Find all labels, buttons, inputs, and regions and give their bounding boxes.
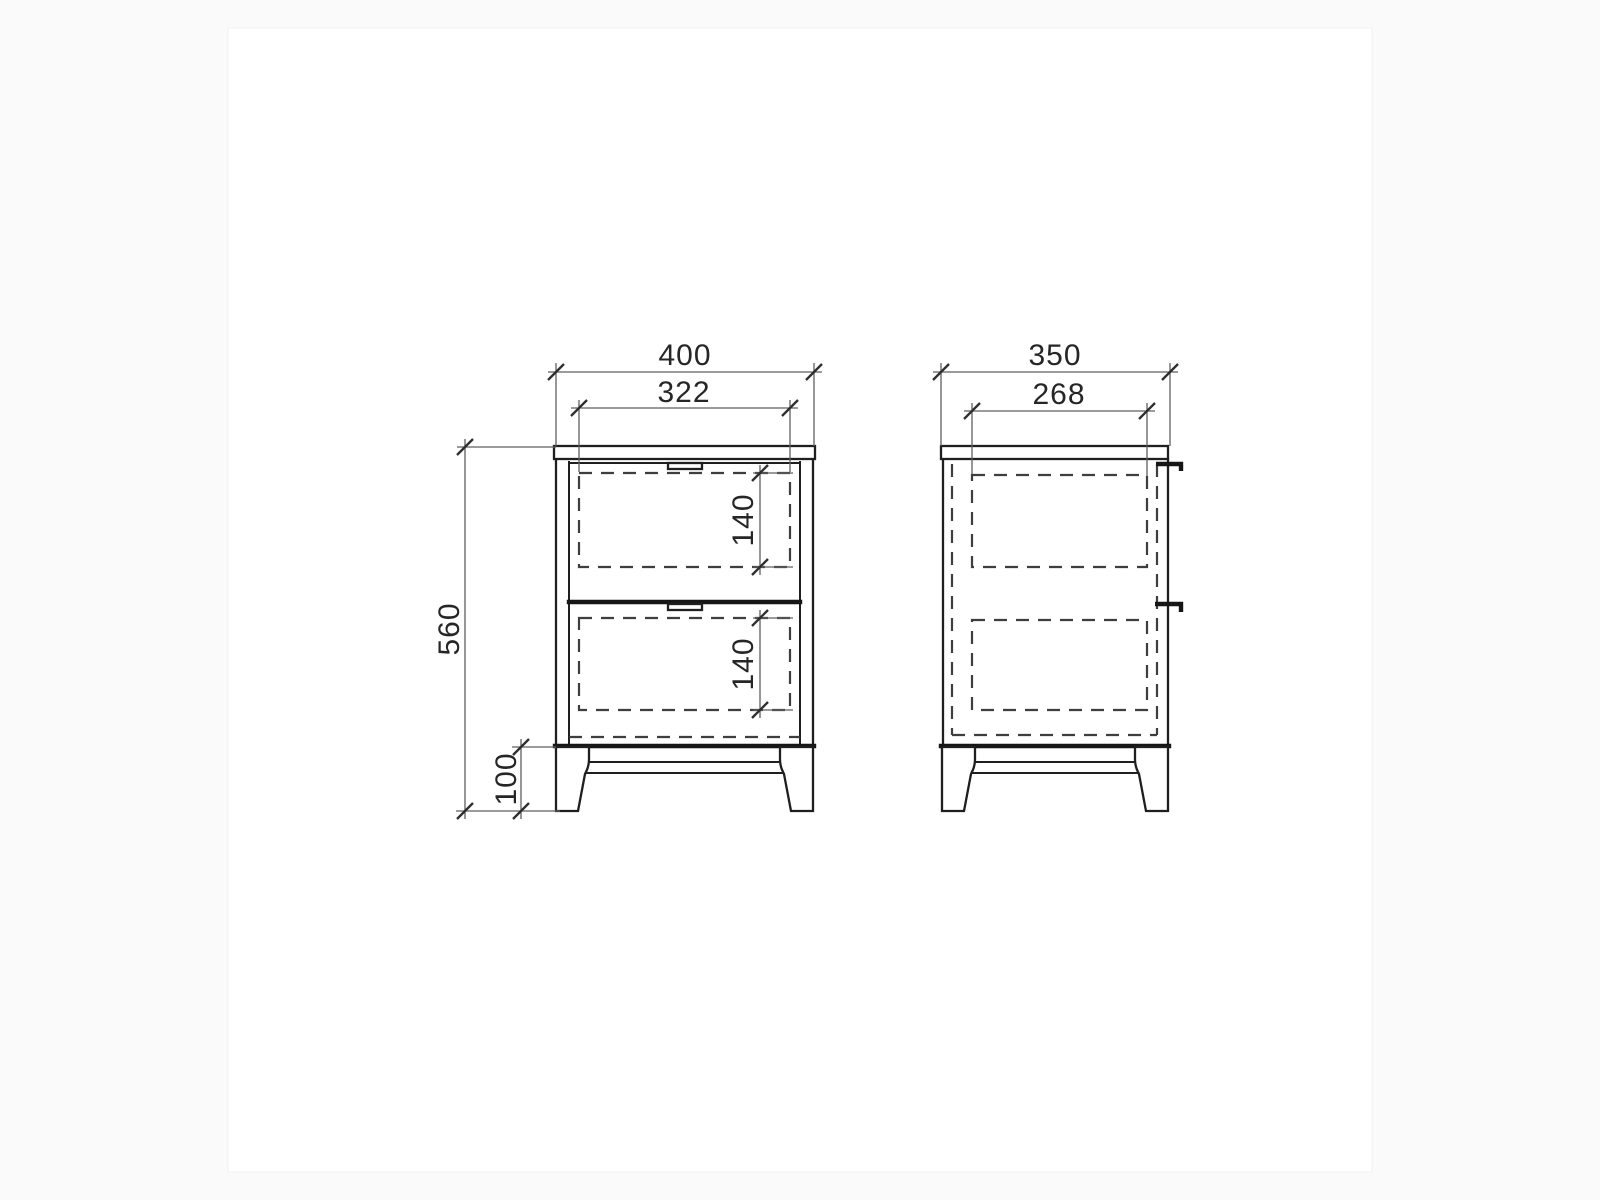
front-top-panel [554,446,815,459]
drawing-canvas: 400 322 560 100 140 140 [0,0,1600,1200]
dim-label-upper-drawer-height: 140 [727,493,760,546]
dim-label-lower-drawer-height: 140 [727,637,760,690]
dim-label-overall-height: 560 [433,602,466,655]
upper-drawer-handle-notch [668,463,702,469]
dim-label-overall-width: 400 [658,339,711,372]
dim-label-leg-height: 100 [490,752,523,805]
dim-label-overall-depth: 350 [1028,339,1081,372]
drawing-stage: 400 322 560 100 140 140 [0,0,1600,1200]
side-top-panel [941,446,1168,459]
dim-label-inner-depth: 268 [1032,378,1085,411]
dim-label-inner-width: 322 [657,376,710,409]
lower-drawer-handle-notch [668,604,702,610]
